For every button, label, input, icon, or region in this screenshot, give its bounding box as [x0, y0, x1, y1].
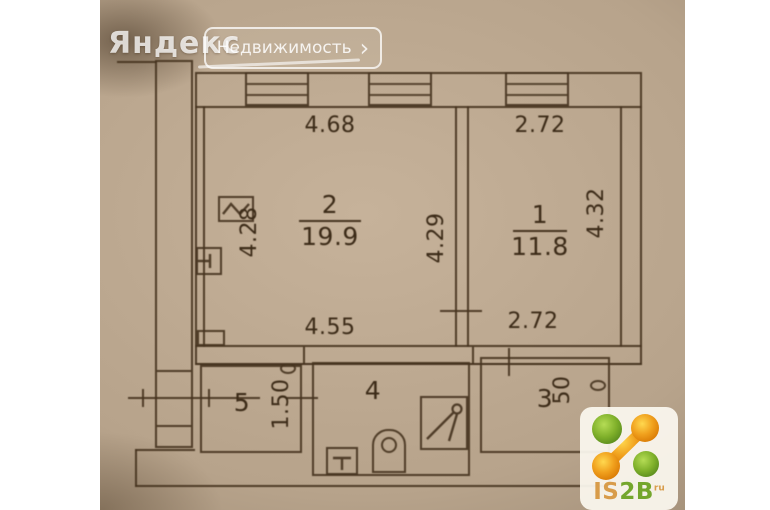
wall-line: [203, 106, 205, 347]
yandex-product-label: Недвижимость: [217, 38, 352, 58]
room2-number: 2: [290, 192, 370, 218]
radiator-line: [507, 94, 567, 96]
door-oval-icon: [590, 380, 606, 391]
wall-line: [195, 106, 642, 108]
room1-label: 1 11.8: [502, 202, 578, 261]
vent-icon: [196, 247, 222, 275]
room2-area: 19.9: [290, 224, 370, 250]
floorplan-photo: 4.68 2.72 4.28 4.29 4.32 4.55 2.72 1.50 …: [100, 0, 685, 510]
radiator-line: [370, 94, 430, 96]
wall-line: [117, 61, 157, 63]
yandex-product-tag: Недвижимость ›: [204, 27, 382, 69]
sink-icon: [326, 447, 358, 475]
dimension-tick: [142, 389, 144, 407]
door-jamb: [303, 347, 305, 363]
window-icon: [245, 72, 309, 106]
dim-room2-left: 4.28: [238, 182, 262, 282]
window-icon: [505, 72, 569, 106]
room1-area: 11.8: [502, 234, 578, 260]
is2b-logo: IS2Bru: [580, 407, 678, 510]
screenshot: 4.68 2.72 4.28 4.29 4.32 4.55 2.72 1.50 …: [0, 0, 770, 510]
wall-line: [135, 449, 195, 451]
radiator-line: [507, 83, 567, 85]
chevron-right-icon: ›: [360, 36, 370, 60]
dimension-tick: [508, 348, 510, 376]
dim-room2-top: 4.68: [250, 114, 410, 137]
is2b-logo-text: IS2Bru: [580, 481, 678, 504]
room1-number: 1: [502, 202, 578, 228]
wall-line: [620, 106, 622, 347]
dim-room2-right: 4.29: [425, 188, 449, 288]
is2b-text-2b: 2B: [619, 479, 654, 505]
dim-room1-bottom: 2.72: [483, 310, 583, 333]
wall-line: [157, 425, 191, 427]
dim-room1-right: 4.32: [585, 163, 609, 263]
room2-label: 2 19.9: [290, 192, 370, 251]
is2b-text-suffix: ru: [654, 483, 665, 493]
dim-room2-bottom: 4.55: [250, 316, 410, 339]
wall-chase: [155, 60, 193, 448]
dim-room1-top: 2.72: [490, 114, 590, 137]
room4-number: 4: [333, 378, 413, 404]
radiator-line: [370, 83, 430, 85]
wall-line: [135, 485, 610, 487]
wall-niche: [197, 330, 225, 346]
room3-number: 3: [505, 386, 585, 412]
door-swing-icon: [420, 396, 468, 450]
dimension-tick: [440, 310, 482, 312]
wall-line: [157, 370, 191, 372]
left-margin: [0, 0, 100, 510]
is2b-text-is: IS: [593, 479, 619, 505]
radiator-line: [247, 94, 307, 96]
radiator-line: [247, 83, 307, 85]
window-icon: [368, 72, 432, 106]
toilet-bowl-icon: [381, 437, 397, 453]
right-margin: [685, 0, 770, 510]
is2b-logo-icon: [580, 407, 678, 481]
room5-number: 5: [202, 390, 282, 416]
door-jamb: [472, 347, 474, 363]
wall-line: [135, 449, 137, 487]
